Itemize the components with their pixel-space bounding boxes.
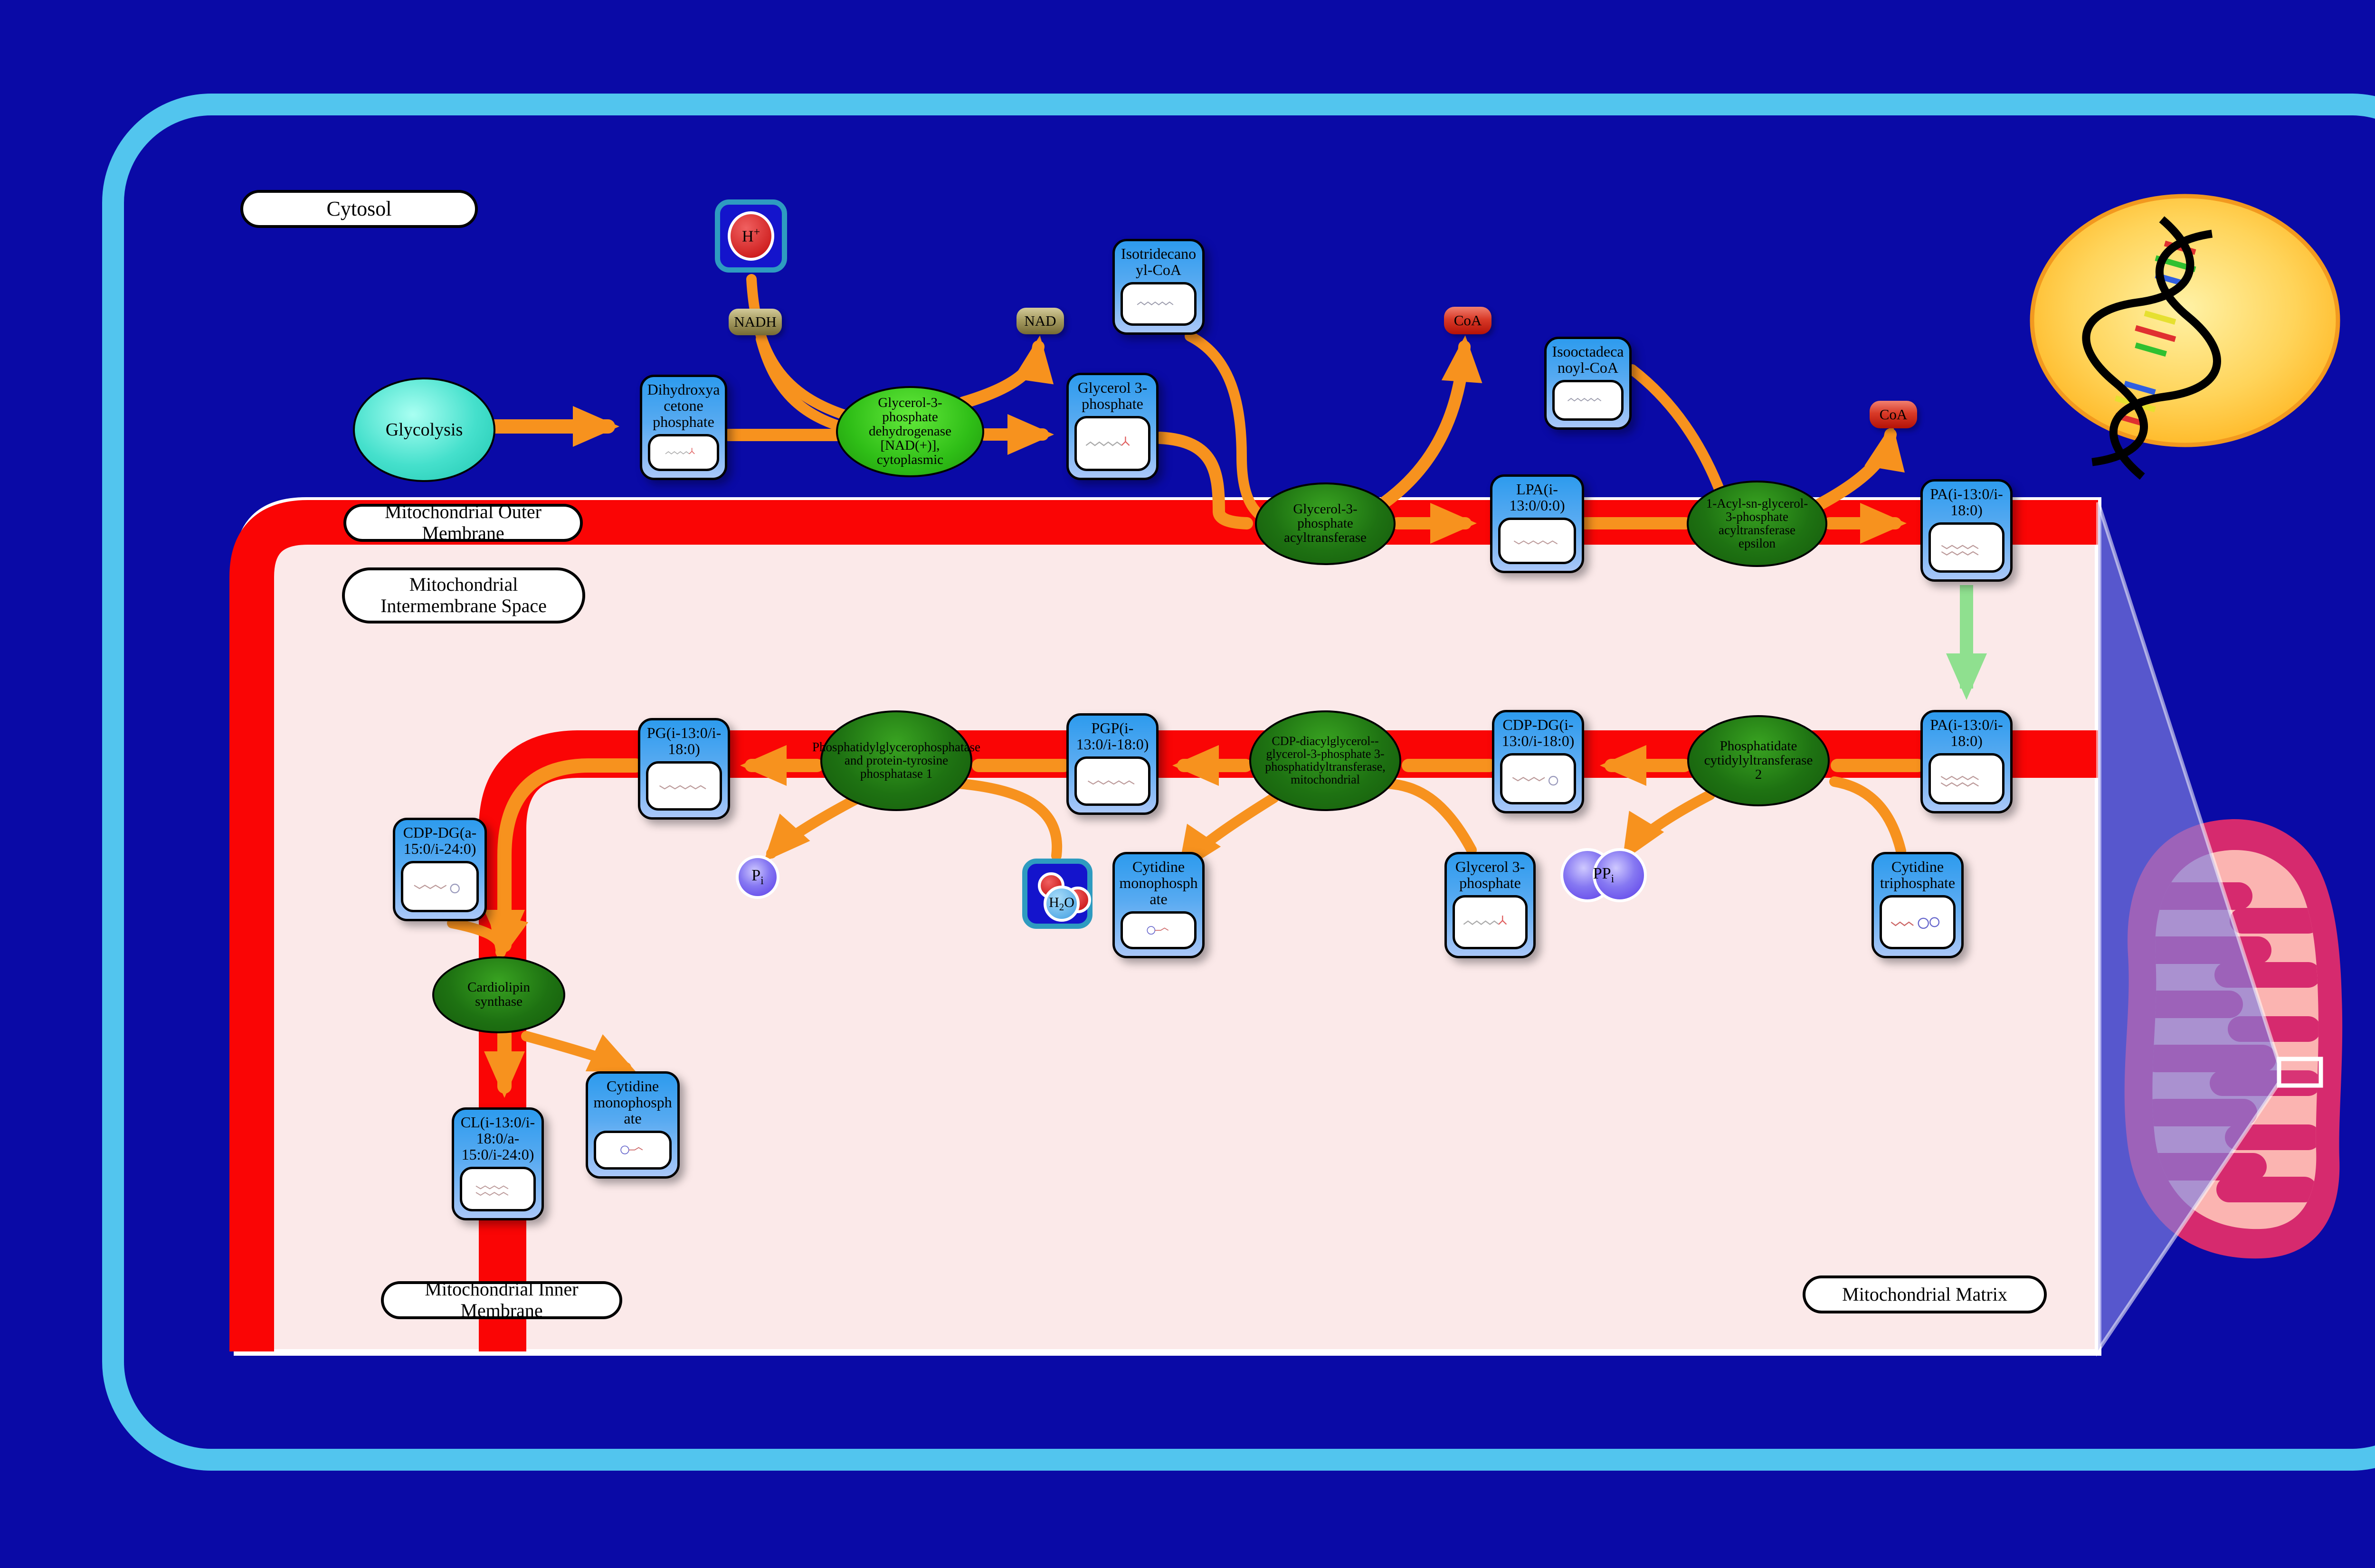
cofactor-h2o[interactable]: H2O — [1022, 859, 1092, 929]
diagram-graphics — [0, 0, 2375, 1568]
molecule-structure — [1509, 531, 1566, 551]
metabolite-node-cl[interactable]: CL(i-13:0/i-18:0/a-15:0/i-24:0) — [452, 1107, 544, 1220]
cofactor-pi[interactable]: Pi — [736, 855, 779, 899]
molecule-structure — [1131, 295, 1187, 313]
cofactor-coa-right[interactable]: CoA — [1870, 401, 1917, 428]
metabolite-node-pg[interactable]: PG(i-13:0/i-18:0) — [638, 718, 730, 820]
molecule-structure — [470, 1180, 526, 1198]
molecule-structure — [1510, 768, 1566, 789]
metabolite-node-lpa[interactable]: LPA(i-13:0/0:0) — [1490, 474, 1584, 573]
enzyme-gpat[interactable]: Glycerol-3-phosphate acyltransferase — [1255, 482, 1396, 565]
metabolite-node-isooctadecanoyl-coa[interactable]: Isooctadecanoyl-CoA — [1544, 337, 1632, 430]
cofactor-nadh[interactable]: NADH — [729, 309, 782, 335]
region-label-inner-membrane: Mitochondrial Inner Membrane — [381, 1281, 622, 1319]
h-plus-ion-icon: H+ — [728, 211, 774, 261]
water-molecule-icon: H2O — [1044, 886, 1080, 922]
pathway-node-glycolysis[interactable]: Glycolysis — [353, 378, 495, 482]
metabolite-node-pa-inner[interactable]: PA(i-13:0/i-18:0) — [1920, 710, 2013, 813]
metabolite-node-pa-outer[interactable]: PA(i-13:0/i-18:0) — [1920, 479, 2013, 582]
molecule-structure — [1939, 768, 1995, 789]
metabolite-node-pgp[interactable]: PGP(i-13:0/i-18:0) — [1066, 713, 1159, 815]
metabolite-node-dhap[interactable]: Dihydroxyacetone phosphate — [640, 375, 727, 480]
metabolite-node-isotridecanoyl-coa[interactable]: Isotridecanoyl-CoA — [1112, 239, 1205, 335]
molecule-structure — [656, 775, 712, 796]
molecule-structure — [604, 1142, 661, 1158]
metabolite-node-cmp-inner[interactable]: Cytidine monophosphate — [586, 1071, 680, 1179]
metabolite-node-g3p-cytosol[interactable]: Glycerol 3-phosphate — [1066, 373, 1159, 480]
zoom-source-box — [2279, 1059, 2321, 1086]
metabolite-node-cdp-dg-2[interactable]: CDP-DG(a-15:0/i-24:0) — [393, 818, 487, 921]
molecule-structure — [1131, 923, 1187, 938]
metabolite-node-ctp[interactable]: Cytidine triphosphate — [1871, 852, 1964, 958]
molecule-structure — [411, 876, 468, 897]
molecule-structure — [1085, 771, 1140, 791]
region-label-cytosol: Cytosol — [240, 190, 478, 228]
cofactor-h-plus[interactable]: H+ — [715, 199, 787, 273]
enzyme-agpat-epsilon[interactable]: 1-Acyl-sn-glycerol-3-phosphate acyltrans… — [1687, 481, 1827, 567]
metabolite-node-cdp-dg-1[interactable]: CDP-DG(i-13:0/i-18:0) — [1492, 710, 1584, 813]
metabolite-node-g3p-matrix[interactable]: Glycerol 3-phosphate — [1444, 852, 1536, 958]
enzyme-pgs1[interactable]: CDP-diacylglycerol--glycerol-3-phosphate… — [1249, 710, 1401, 811]
region-label-intermembrane-space: Mitochondrial Intermembrane Space — [342, 567, 585, 623]
pathway-diagram: Cytosol Mitochondrial Outer Membrane Mit… — [0, 0, 2375, 1568]
region-label-matrix: Mitochondrial Matrix — [1803, 1275, 2047, 1313]
enzyme-ptpmt1[interactable]: Phosphatidylglycerophosphatase and prote… — [820, 710, 972, 811]
metabolite-node-cmp-matrix[interactable]: Cytidine monophosphate — [1112, 852, 1205, 958]
nucleus-illustration — [2032, 196, 2338, 488]
molecule-structure — [1562, 392, 1614, 408]
molecule-structure — [1463, 911, 1517, 934]
enzyme-gpd-cytoplasmic[interactable]: Glycerol-3-phosphate dehydrogenase [NAD(… — [836, 386, 984, 477]
enzyme-cardiolipin-synthase[interactable]: Cardiolipin synthase — [432, 956, 565, 1033]
molecule-structure — [1939, 537, 1995, 558]
molecule-structure — [1890, 911, 1946, 934]
region-label-outer-membrane: Mitochondrial Outer Membrane — [343, 504, 583, 542]
cofactor-ppi[interactable]: PPi — [1560, 846, 1647, 904]
molecule-structure — [1085, 432, 1140, 455]
enzyme-pcyt2[interactable]: Phosphatidate cytidylyltransferase 2 — [1687, 715, 1830, 806]
cofactor-coa-top[interactable]: CoA — [1444, 307, 1491, 334]
cofactor-nad[interactable]: NAD — [1016, 308, 1064, 334]
molecule-structure — [657, 445, 709, 460]
